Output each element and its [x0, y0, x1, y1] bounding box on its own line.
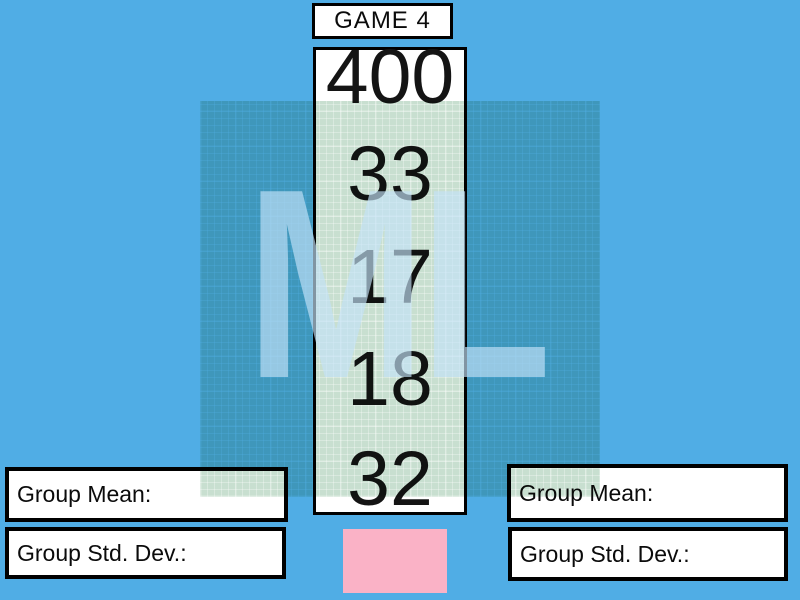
left-group-std-dev-box[interactable]: Group Std. Dev.:: [5, 527, 286, 579]
left-group-mean-label: Group Mean:: [17, 481, 151, 508]
right-group-std-dev-box[interactable]: Group Std. Dev.:: [508, 527, 788, 581]
ml-watermark: ML: [246, 150, 545, 420]
right-group-std-dev-label: Group Std. Dev.:: [520, 541, 690, 568]
game-title-label: GAME 4: [334, 7, 431, 35]
left-group-std-dev-label: Group Std. Dev.:: [17, 540, 187, 567]
slide: GAME 4 400 33 17 18 32 Group Mean: Group…: [0, 0, 800, 600]
pink-card[interactable]: [343, 529, 447, 593]
